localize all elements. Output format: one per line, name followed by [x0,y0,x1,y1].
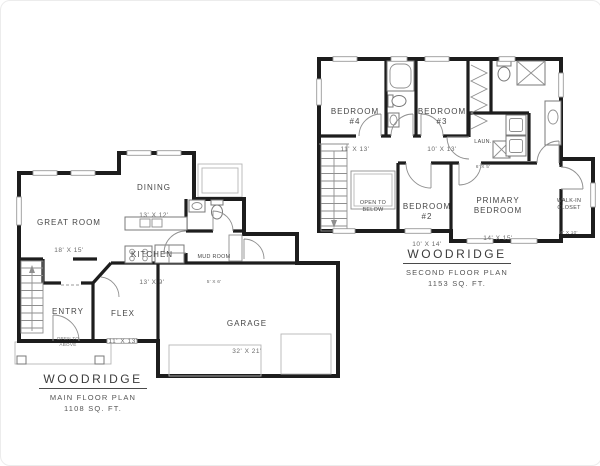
plan-area: 1108 SQ. FT. [29,404,157,413]
mudroom-bench-icon [229,235,242,261]
main-floor-drawing [15,151,338,376]
main-floor-title-block: WOODRIDGE MAIN FLOOR PLAN 1108 SQ. FT. [29,370,157,413]
plan-subtitle: MAIN FLOOR PLAN [29,393,157,402]
vanity-sink-icon [545,101,561,145]
floor-plan-sheet: GREAT ROOM 18' X 15' DINING 13' X 12' KI… [0,0,600,466]
washer-dryer-icon [506,115,526,156]
closet-bifold-icon [471,65,487,129]
plan-title: WOODRIDGE [403,247,510,264]
plan-title: WOODRIDGE [39,372,146,389]
second-floor-walls [319,59,593,241]
shower-icon [517,61,545,85]
range-icon [125,246,152,263]
front-porch [15,342,111,364]
deck [198,164,242,197]
kitchen-island-icon [125,217,187,230]
hall-bath-toilet-icon [388,95,406,107]
second-floor-title-block: WOODRIDGE SECOND FLOOR PLAN 1153 SQ. FT. [393,245,521,288]
bathtub-icon [387,61,414,91]
refrigerator-icon [155,245,184,263]
primary-toilet-icon [497,61,511,81]
garage-door [169,334,331,376]
main-floor-walls [19,153,338,376]
plan-subtitle: SECOND FLOOR PLAN [393,268,521,277]
plan-area: 1153 SQ. FT. [393,279,521,288]
second-floor-drawing [317,57,596,244]
open-to-below-rail [351,171,395,209]
powder-bath-sink-icon [189,200,205,212]
windows-second [317,57,596,244]
stairs-icon [21,261,43,333]
stairs-icon-second [321,144,347,231]
